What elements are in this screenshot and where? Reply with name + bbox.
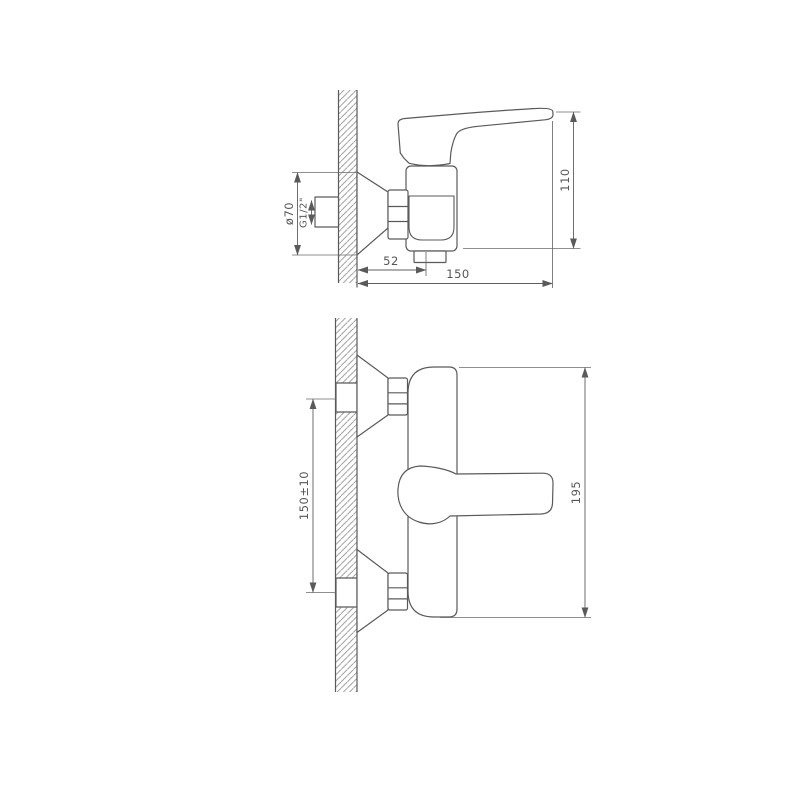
eccentric-connector-side: [357, 172, 388, 255]
dim-label-thread: G1/2": [299, 197, 310, 228]
eccentric-connector-bottom: [357, 550, 388, 633]
dim-label-connection-spacing: 150±10: [297, 471, 311, 520]
dim-label-height: 110: [558, 168, 572, 191]
dim-label-flange-diameter: ø70: [282, 202, 296, 225]
spout-outlet-side: [414, 251, 446, 263]
eccentric-connector-top: [357, 355, 388, 437]
faucet-installation-drawing: ø70 G1/2" 52 150 110: [0, 0, 800, 800]
dim-label-overall-width: 195: [569, 481, 583, 504]
lever-handle-front: [398, 466, 553, 524]
technical-drawing-page: ø70 G1/2" 52 150 110: [0, 0, 800, 800]
wall-pipe-fitting-side: [315, 197, 339, 227]
dimension-height: 110: [463, 112, 581, 249]
front-view: 150±10 195: [297, 318, 591, 692]
mounting-nut-side: [388, 190, 408, 239]
wall-hatch-side: [339, 90, 358, 283]
lever-handle-side: [398, 108, 553, 165]
wall-hatch-front: [336, 318, 358, 692]
dim-label-spout-offset: 52: [383, 254, 399, 268]
side-view: ø70 G1/2" 52 150 110: [282, 90, 581, 288]
dim-label-projection: 150: [446, 267, 469, 281]
mounting-nut-top: [388, 378, 408, 415]
dimension-connection-spacing: 150±10: [297, 399, 336, 593]
dimension-thread: G1/2": [299, 197, 312, 228]
mounting-nut-bottom: [388, 573, 408, 610]
wall-pipe-fitting-bottom: [336, 578, 357, 607]
wall-pipe-fitting-top: [336, 383, 357, 412]
